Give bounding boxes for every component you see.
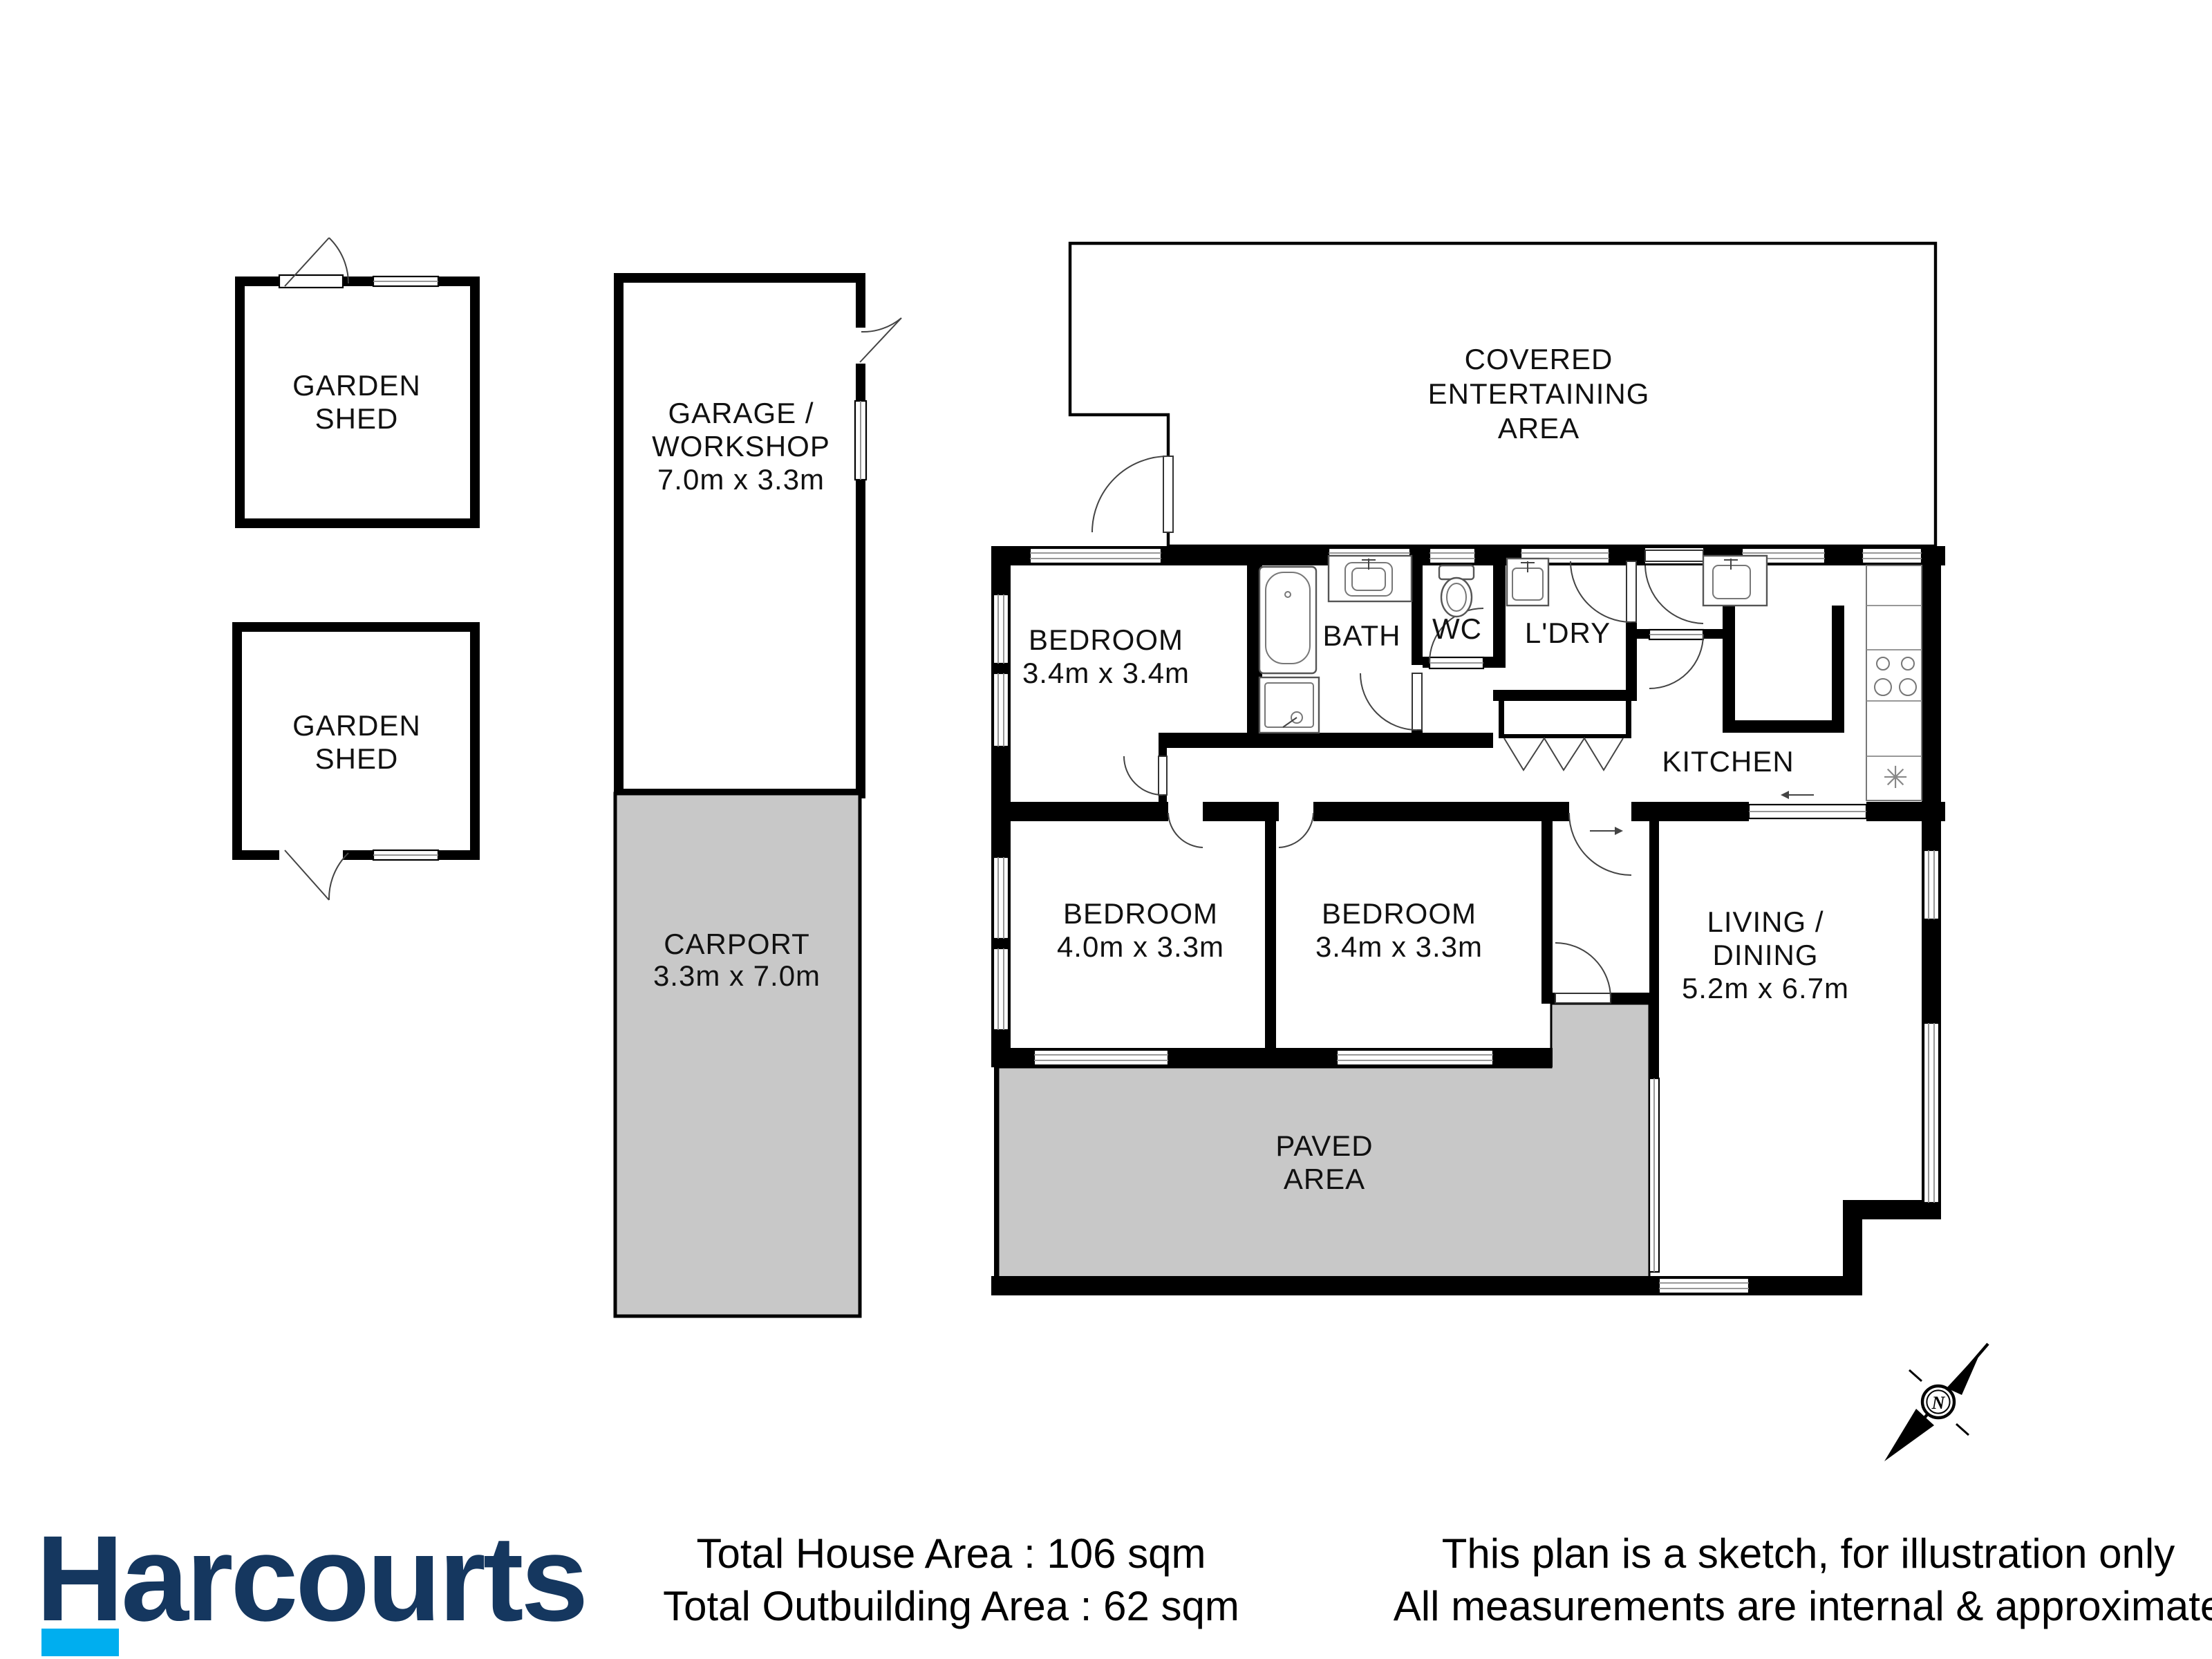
garage-workshop: GARAGE / WORKSHOP 7.0m x 3.3m: [619, 278, 901, 794]
living-right-windows: [1924, 850, 1939, 1203]
covered-area-door: [1092, 456, 1173, 532]
garden-shed-1: GARDEN SHED: [240, 238, 475, 523]
lobby-bottom-window: [1649, 630, 1703, 639]
bedroom2-bottom-window: [1034, 1050, 1168, 1065]
kitchen-top-window-2: [1862, 548, 1922, 563]
toilet-icon: [1439, 565, 1474, 617]
covered-area-label: ENTERTAINING: [1428, 377, 1650, 410]
paved-area-label: PAVED: [1275, 1130, 1373, 1162]
harcourts-logo-underline: [41, 1629, 119, 1656]
garage-label: GARAGE /: [668, 397, 814, 429]
garden-shed-2: GARDEN SHED: [237, 627, 475, 900]
shed2-label: SHED: [315, 742, 399, 775]
shed1-label: GARDEN: [292, 369, 421, 402]
living-left-window: [1649, 1078, 1659, 1272]
bedroom2-label: BEDROOM: [1063, 897, 1218, 930]
carport-label: CARPORT: [664, 928, 810, 960]
garage-door-gap: [854, 328, 867, 364]
laundry-sink-icon: [1507, 559, 1548, 606]
compass-north-label: N: [1931, 1393, 1946, 1413]
carport-shape: [615, 794, 860, 1316]
covered-area-label: COVERED: [1465, 343, 1613, 375]
harcourts-logo: Harcourts: [36, 1511, 585, 1647]
garage-label: 7.0m x 3.3m: [657, 463, 825, 496]
bathtub-icon: [1259, 567, 1316, 673]
kitchen-label: KITCHEN: [1662, 745, 1794, 778]
compass-head: [1947, 1351, 1981, 1395]
paved-area-label: AREA: [1284, 1163, 1365, 1195]
bedroom1-top-window: [1030, 548, 1161, 563]
carport: CARPORT 3.3m x 7.0m: [615, 794, 860, 1316]
ldry-label: L'DRY: [1525, 617, 1611, 649]
compass-rose: N: [1884, 1344, 1988, 1461]
bedroom1-dims: 3.4m x 3.4m: [1022, 657, 1190, 689]
bedroom1-label: BEDROOM: [1029, 624, 1183, 656]
shed1-window: [373, 276, 438, 286]
living-bottom-window: [1659, 1278, 1749, 1293]
fridge-icon: ✳: [1883, 761, 1909, 795]
shed1-label: SHED: [315, 402, 399, 435]
total-outbuilding-area: Total Outbuilding Area : 62 sqm: [663, 1583, 1239, 1629]
covered-area-label: AREA: [1498, 412, 1580, 444]
total-house-area: Total House Area : 106 sqm: [696, 1530, 1206, 1577]
garage-label: WORKSHOP: [652, 430, 830, 462]
garage-window: [855, 401, 866, 480]
disclaimer-line1: This plan is a sketch, for illustration …: [1442, 1530, 2175, 1577]
disclaimer-line2: All measurements are internal & approxim…: [1394, 1583, 2212, 1629]
wc-bottom-window: [1430, 657, 1483, 668]
shed2-label: GARDEN: [292, 709, 421, 742]
garage-walls: [619, 278, 861, 794]
kitchen-sink-icon: [1703, 556, 1767, 606]
wc-label: WC: [1432, 612, 1482, 645]
floor-plan: COVERED ENTERTAINING AREA PAVED AREA GAR…: [0, 0, 2212, 1659]
footer: Harcourts Total House Area : 106 sqm Tot…: [36, 1511, 2212, 1656]
living-label: DINING: [1713, 939, 1819, 971]
bedroom3-dims: 3.4m x 3.3m: [1315, 930, 1483, 963]
bedroom3-label: BEDROOM: [1322, 897, 1477, 930]
bedroom3-bottom-window: [1337, 1050, 1493, 1065]
bath-label: BATH: [1323, 619, 1401, 652]
wc-top-window: [1430, 548, 1475, 563]
bath-sink-icon: [1329, 556, 1412, 601]
carport-label: 3.3m x 7.0m: [653, 959, 821, 992]
covered-entertaining-area: COVERED ENTERTAINING AREA: [1070, 243, 1935, 546]
shower-icon: [1259, 677, 1319, 733]
living-label: LIVING /: [1707, 906, 1824, 938]
living-dims: 5.2m x 6.7m: [1682, 972, 1849, 1004]
bedroom2-dims: 4.0m x 3.3m: [1057, 930, 1224, 963]
shed2-window: [373, 850, 438, 860]
